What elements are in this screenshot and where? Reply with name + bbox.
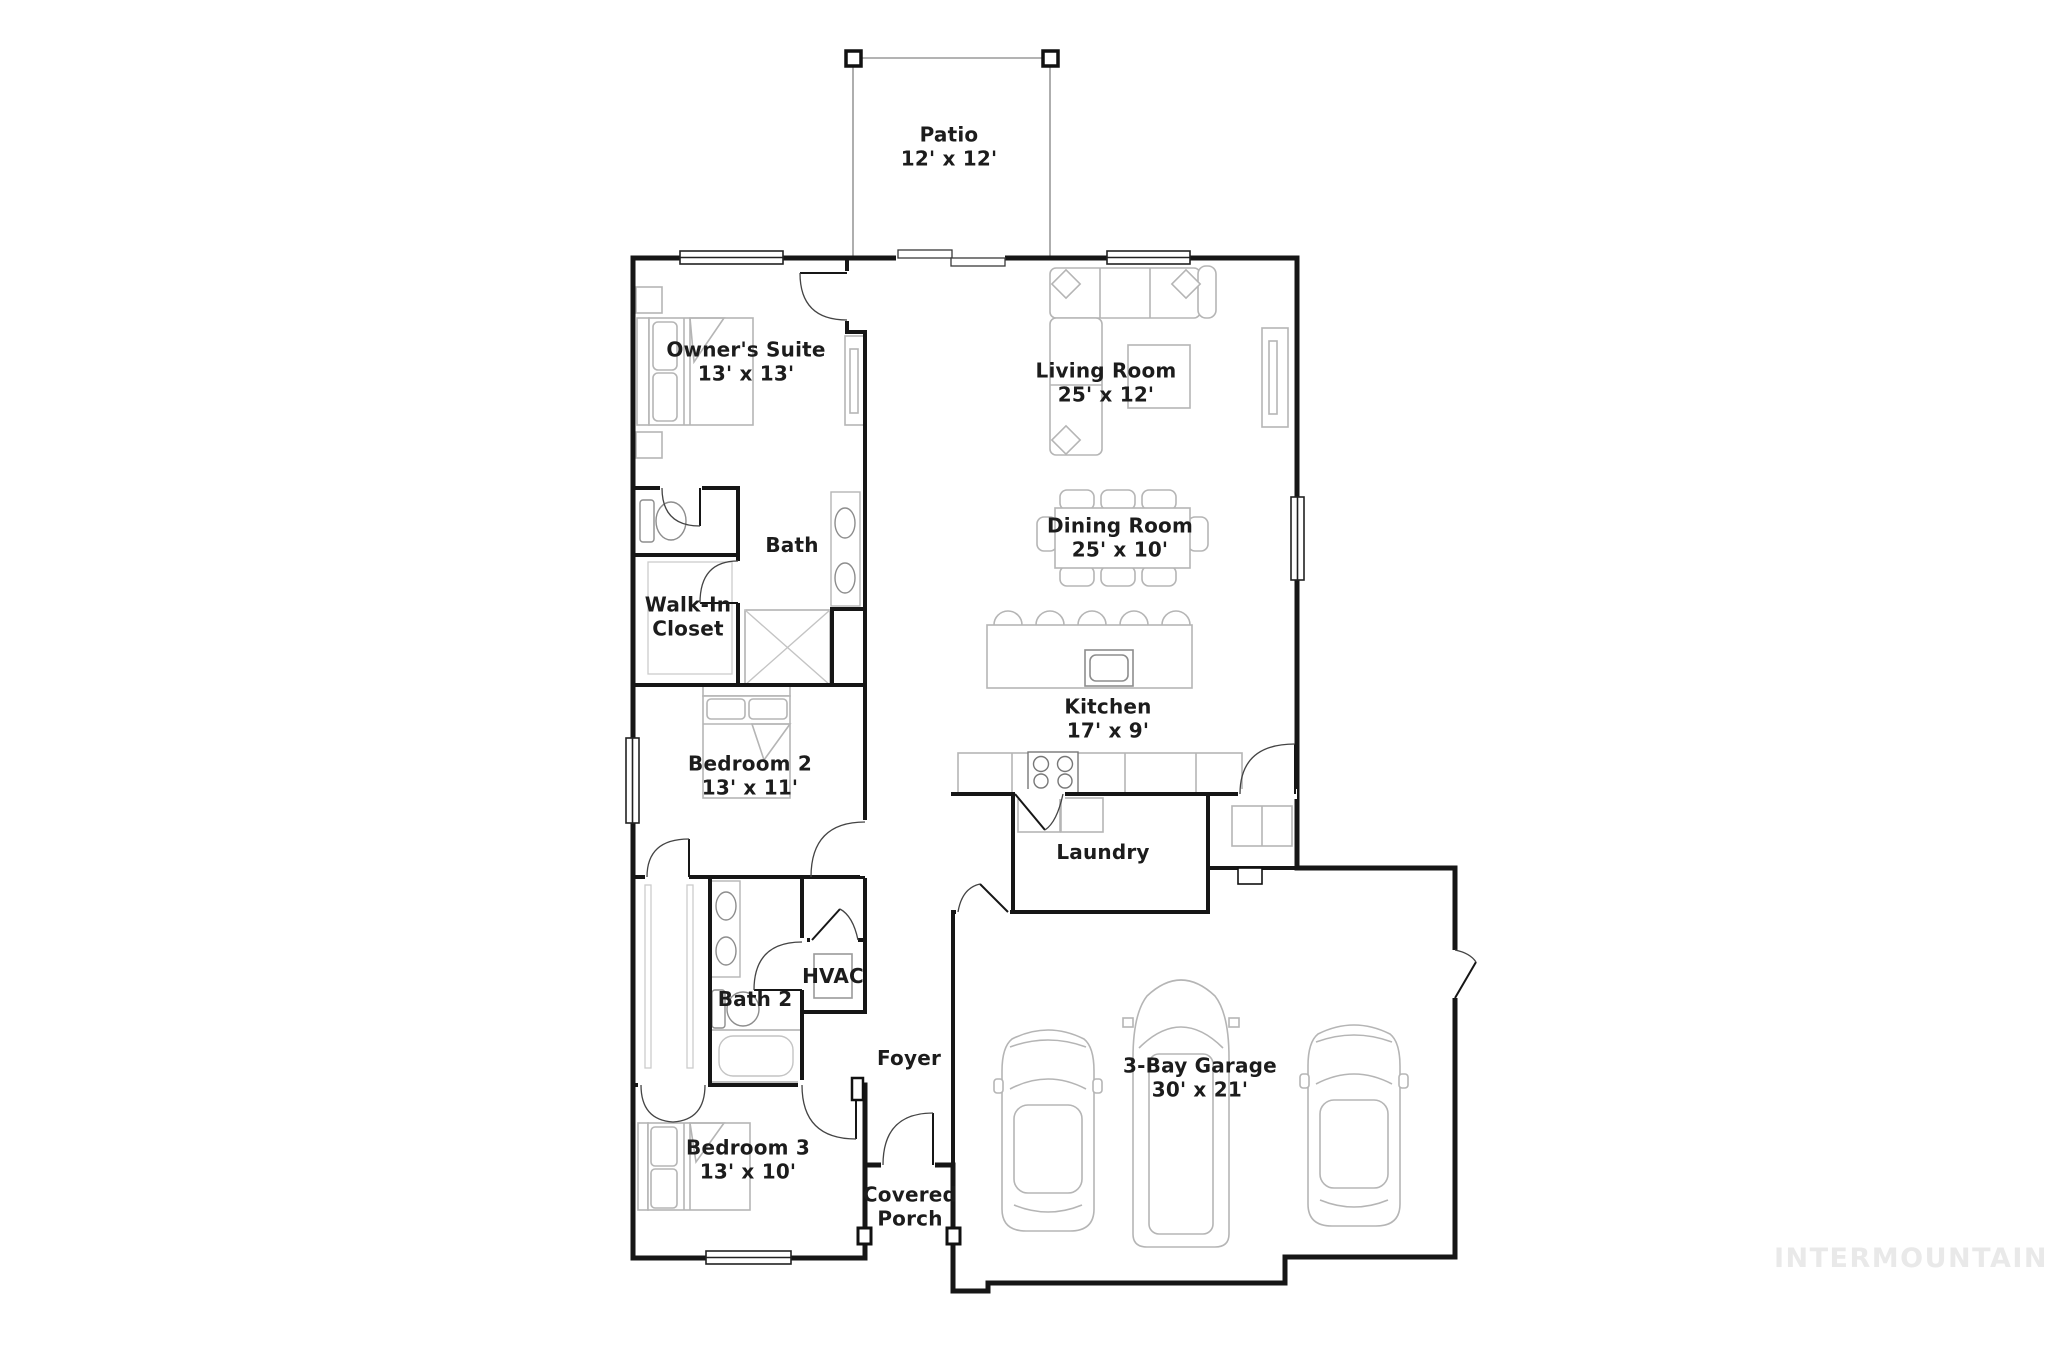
window xyxy=(706,1251,791,1264)
kitchen-island xyxy=(987,611,1192,688)
room-label-dining-room: Dining Room 25' x 10' xyxy=(1047,514,1193,561)
room-label-owners-suite: Owner's Suite 13' x 13' xyxy=(666,338,825,385)
room-name: Covered Porch xyxy=(863,1182,957,1230)
patio-post xyxy=(1043,51,1058,66)
car-right xyxy=(1300,1025,1408,1226)
window xyxy=(1107,251,1190,264)
room-label-bedroom2: Bedroom 2 13' x 11' xyxy=(688,752,812,799)
room-dims: 17' x 9' xyxy=(1064,719,1151,743)
window xyxy=(1291,497,1304,580)
window xyxy=(680,251,783,264)
window xyxy=(626,738,639,823)
room-name: Bath xyxy=(765,533,818,557)
tv-console xyxy=(845,336,864,425)
room-label-kitchen: Kitchen 17' x 9' xyxy=(1064,695,1151,742)
kitchen-counter xyxy=(958,753,1242,793)
room-dims: 13' x 11' xyxy=(688,776,812,800)
room-name: 3-Bay Garage xyxy=(1123,1053,1277,1077)
patio-post xyxy=(846,51,861,66)
nightstand xyxy=(636,432,662,458)
media-console xyxy=(1262,328,1288,427)
car-left xyxy=(994,1030,1102,1231)
van-center xyxy=(1123,980,1239,1247)
room-dims: 13' x 10' xyxy=(686,1160,810,1184)
room-label-bedroom3: Bedroom 3 13' x 10' xyxy=(686,1136,810,1183)
floorplan-drawing xyxy=(0,0,2048,1365)
watermark: INTERMOUNTAIN xyxy=(1774,1243,2048,1274)
room-label-foyer: Foyer xyxy=(877,1047,941,1071)
floorplan-page: Patio 12' x 12' Owner's Suite 13' x 13' … xyxy=(0,0,2048,1365)
room-name: Kitchen xyxy=(1064,694,1151,718)
room-name: Bedroom 2 xyxy=(688,751,812,775)
room-name: Patio xyxy=(920,122,979,146)
stove xyxy=(1028,752,1078,793)
room-dims: 25' x 12' xyxy=(1036,383,1177,407)
garage-step xyxy=(1238,868,1262,884)
room-label-garage: 3-Bay Garage 30' x 21' xyxy=(1123,1054,1277,1101)
hall-closet-shelving xyxy=(645,885,693,1068)
room-name: Bath 2 xyxy=(718,987,793,1011)
room-label-living-room: Living Room 25' x 12' xyxy=(1036,359,1177,406)
room-label-walk-in-closet: Walk-In Closet xyxy=(626,593,750,640)
room-label-hvac: HVAC xyxy=(802,965,864,989)
shower xyxy=(745,610,830,685)
room-label-bath: Bath xyxy=(765,534,818,558)
room-name: Laundry xyxy=(1056,840,1149,864)
room-dims: 25' x 10' xyxy=(1047,538,1193,562)
room-label-laundry: Laundry xyxy=(1056,841,1149,865)
bath2-fixtures xyxy=(711,881,801,1082)
room-name: HVAC xyxy=(802,964,864,988)
owner-bath-fixtures xyxy=(640,492,860,606)
room-name: Living Room xyxy=(1036,358,1177,382)
room-name: Bedroom 3 xyxy=(686,1135,810,1159)
room-label-patio: Patio 12' x 12' xyxy=(901,123,998,170)
room-name: Owner's Suite xyxy=(666,337,825,361)
room-name: Walk-In Closet xyxy=(645,592,731,640)
room-dims: 13' x 13' xyxy=(666,362,825,386)
room-name: Foyer xyxy=(877,1046,941,1070)
room-label-bath2: Bath 2 xyxy=(718,988,793,1012)
mud-bench xyxy=(1232,806,1292,846)
wall-stub xyxy=(852,1078,863,1100)
room-name: Dining Room xyxy=(1047,513,1193,537)
nightstand xyxy=(636,287,662,313)
room-dims: 12' x 12' xyxy=(901,147,998,171)
room-label-covered-porch: Covered Porch xyxy=(848,1183,972,1230)
room-dims: 30' x 21' xyxy=(1123,1078,1277,1102)
